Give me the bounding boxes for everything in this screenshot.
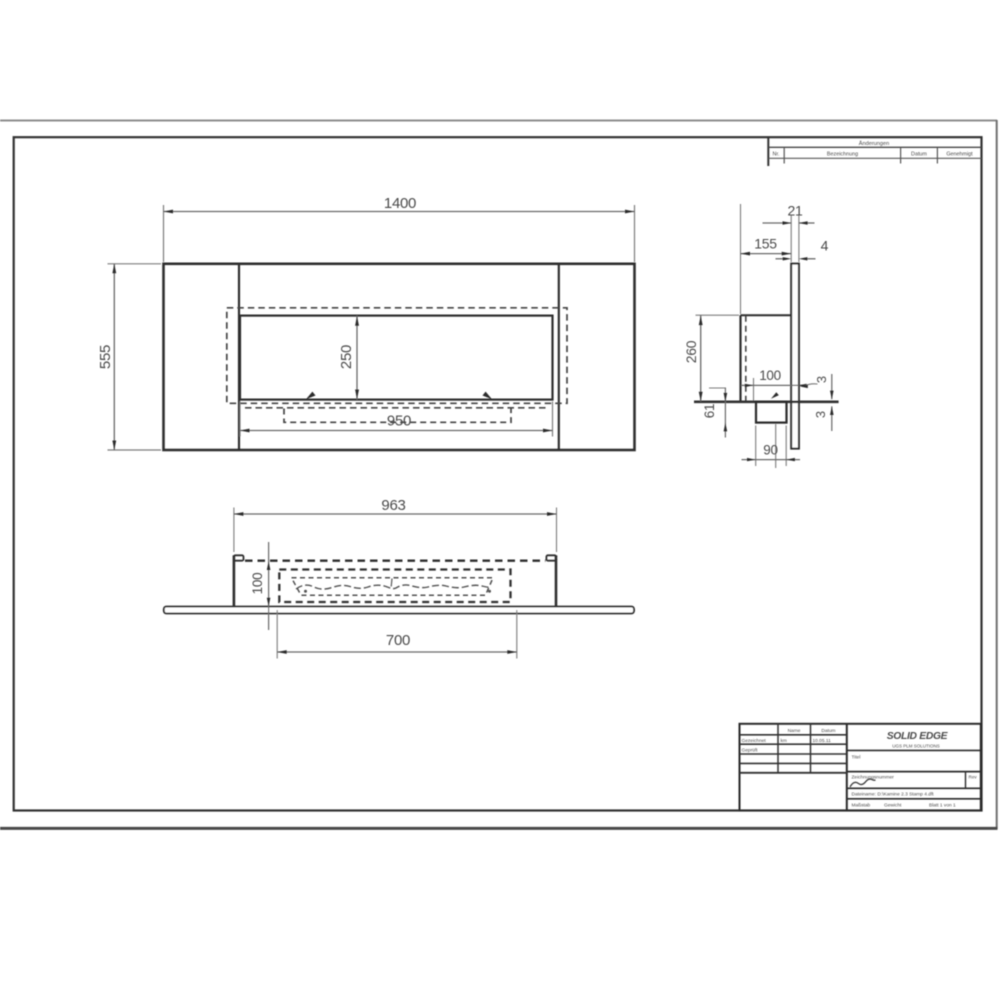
svg-text:3: 3	[814, 376, 829, 383]
svg-text:km: km	[781, 738, 787, 744]
svg-text:Gewicht: Gewicht	[884, 803, 902, 809]
svg-text:4: 4	[821, 238, 829, 254]
svg-text:Dateiname: D:\Kamine 2.3 Stamp: Dateiname: D:\Kamine 2.3 Stamp 4.dft	[852, 791, 935, 797]
svg-text:Rev: Rev	[969, 775, 978, 780]
svg-text:Änderungen: Änderungen	[859, 140, 889, 147]
svg-text:Titel: Titel	[852, 755, 861, 761]
svg-text:Datum: Datum	[821, 728, 835, 734]
svg-text:Name: Name	[788, 728, 801, 734]
svg-text:61: 61	[702, 404, 717, 418]
svg-text:250: 250	[338, 345, 355, 369]
svg-text:Geprüft: Geprüft	[742, 747, 759, 753]
svg-text:Bezeichnung: Bezeichnung	[827, 151, 858, 157]
svg-text:UGS PLM SOLUTIONS: UGS PLM SOLUTIONS	[892, 744, 940, 749]
svg-text:90: 90	[763, 442, 777, 457]
svg-text:3: 3	[813, 411, 828, 418]
svg-text:555: 555	[97, 345, 114, 369]
svg-text:Datum: Datum	[911, 151, 927, 157]
svg-text:Blatt 1 von 1: Blatt 1 von 1	[929, 803, 956, 809]
svg-text:Nr.: Nr.	[773, 151, 780, 157]
svg-text:Genehmigt: Genehmigt	[946, 151, 973, 157]
svg-text:100: 100	[250, 573, 265, 595]
svg-text:Gezeichnet: Gezeichnet	[742, 738, 767, 744]
svg-text:10.05.11: 10.05.11	[813, 738, 832, 744]
svg-text:21: 21	[788, 203, 803, 219]
svg-text:SOLID EDGE: SOLID EDGE	[887, 731, 949, 742]
svg-text:260: 260	[683, 340, 699, 363]
svg-text:Maßstab: Maßstab	[852, 803, 871, 809]
svg-text:963: 963	[381, 497, 405, 514]
svg-text:700: 700	[386, 632, 410, 649]
svg-text:100: 100	[759, 368, 781, 383]
svg-text:1400: 1400	[384, 195, 416, 212]
svg-text:950: 950	[387, 413, 411, 430]
svg-text:155: 155	[754, 236, 777, 252]
